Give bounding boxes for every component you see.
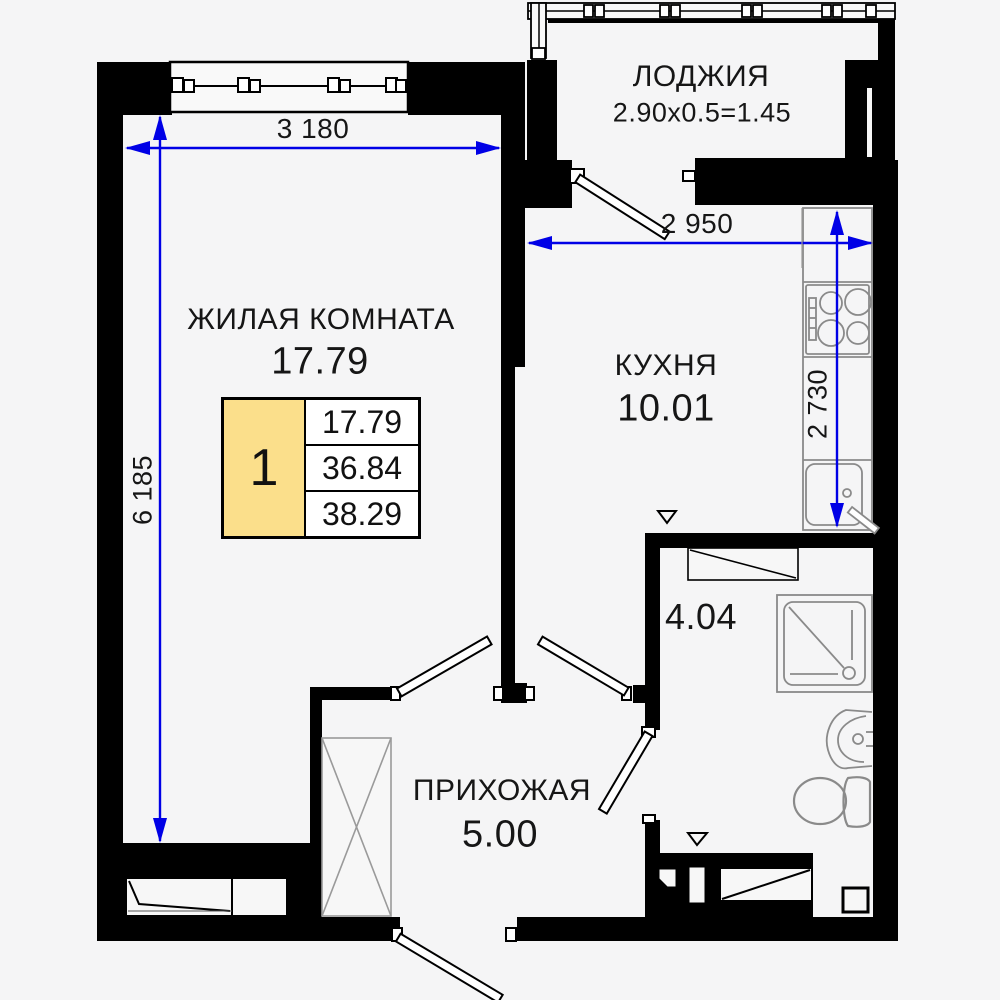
unit-usable-area: 36.84	[306, 446, 418, 492]
dim-living-height-value: 6 185	[128, 455, 159, 525]
wall-bottom-hall	[310, 917, 400, 941]
wall-loggia-left	[527, 60, 557, 160]
wall-bathroom-top	[645, 533, 873, 548]
wall-kitchen-door-post	[633, 685, 645, 703]
wall-bottom-right	[517, 917, 898, 941]
kitchen-door-icon	[525, 637, 631, 700]
loggia-wall-slot	[867, 88, 872, 157]
wall-hall-top	[310, 687, 393, 700]
dim-kitchen-depth-value: 2 730	[803, 369, 834, 439]
wardrobe-icon	[322, 738, 391, 916]
shower-icon	[777, 595, 872, 692]
bathroom-door-icon	[599, 727, 655, 823]
dim-living-width-value: 3 180	[277, 113, 350, 145]
kitchen-sink-icon	[806, 464, 879, 533]
floor-plan: ЛОДЖИЯ 2.90x0.5=1.45 ЖИЛАЯ КОМНАТА 17.79…	[0, 0, 1000, 1000]
loggia-glazing-icon	[528, 3, 895, 59]
loggia-label: ЛОДЖИЯ	[633, 60, 770, 94]
marker-triangle-kitchen	[658, 511, 676, 523]
vent-shaft-icon	[843, 888, 868, 912]
kitchen-area: 10.01	[617, 388, 715, 431]
wall-living-kitchen-upper	[501, 115, 525, 367]
living-room-area: 17.79	[271, 341, 369, 384]
wall-left-outer	[97, 62, 123, 941]
unit-rooms-count: 1	[224, 400, 306, 536]
dim-kitchen-width-value: 2 950	[661, 208, 734, 240]
unit-info-card: 1 17.79 36.84 38.29	[221, 397, 421, 539]
wall-pillar	[501, 683, 527, 703]
unit-living-area: 17.79	[306, 400, 418, 446]
wall-top-left	[97, 62, 172, 115]
unit-total-area: 38.29	[306, 492, 418, 536]
kitchen-label: КУХНЯ	[615, 349, 718, 383]
hallway-area: 5.00	[462, 814, 538, 857]
wall-bathroom-left-upper	[645, 533, 660, 730]
wall-loggia-sill-left	[501, 160, 572, 208]
wall-hall-left	[310, 687, 322, 941]
entrance-door-icon	[392, 928, 516, 1000]
bathroom-area: 4.04	[665, 596, 737, 638]
loggia-area: 2.90x0.5=1.45	[613, 98, 791, 129]
wall-loggia-sill-right	[695, 158, 875, 205]
living-window-icon	[170, 62, 408, 112]
wall-right-outer	[873, 160, 898, 941]
stove-icon	[806, 285, 871, 354]
bottom-window-niche	[126, 878, 287, 916]
living-door-icon	[391, 637, 503, 700]
wall-living-kitchen-lower	[501, 367, 515, 687]
toilet-icon	[794, 777, 870, 827]
bathroom-cabinet-icon	[688, 548, 798, 580]
marker-triangle-bathroom	[688, 833, 707, 845]
wall-top-right	[408, 62, 525, 115]
washbasin-icon	[827, 710, 873, 768]
hallway-label: ПРИХОЖАЯ	[413, 774, 591, 808]
living-room-label: ЖИЛАЯ КОМНАТА	[187, 303, 455, 337]
